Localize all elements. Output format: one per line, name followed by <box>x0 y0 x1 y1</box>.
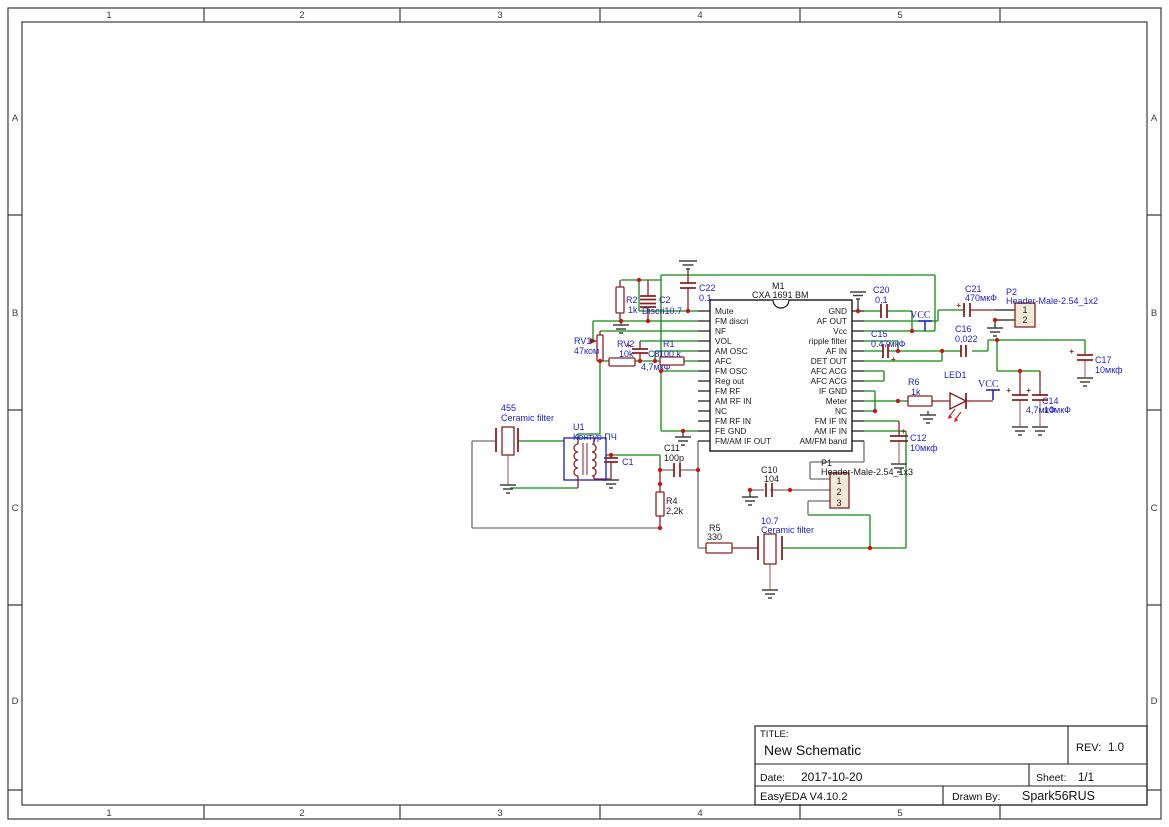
p1-pin-number: 3 <box>836 498 841 508</box>
component-107-ceramic-filter[interactable]: 10.7 Ceramic filter <box>758 516 814 564</box>
ic-pin-label: AFC ACG <box>811 376 847 386</box>
ic-pin-label: AM IF IN <box>814 426 847 436</box>
c2-ref-label: C2 <box>659 295 671 305</box>
ic-pin-label: NF <box>715 326 726 336</box>
schematic-sheet: 1 2 3 4 5 1 2 3 4 5 A B C D A B C D TITL… <box>0 0 1169 827</box>
frame-row-label: C <box>12 503 19 514</box>
vcc-net-flag[interactable]: VCC <box>978 379 1000 400</box>
frame-col-label: 5 <box>897 10 902 21</box>
sheet-label: Sheet: <box>1036 772 1066 784</box>
frame-col-label: 4 <box>697 808 702 819</box>
component-c22[interactable]: C22 0.1 <box>680 283 716 303</box>
ic-pin-label: AF IN <box>826 346 847 356</box>
ic-pin-label: VOL <box>715 336 732 346</box>
component-rv1-potentiometer[interactable]: RV1 47ком <box>574 335 603 361</box>
c13-plus-sign: + <box>1006 386 1011 395</box>
ic-pin-label: ripple filter <box>809 336 848 346</box>
rv1-ref-label: RV1 <box>574 336 591 346</box>
c15-plus-sign: + <box>891 355 896 364</box>
c1-ref-label: C1 <box>622 457 634 467</box>
ic-pin-label: AFC <box>715 356 732 366</box>
p1-pin-number: 1 <box>836 476 841 486</box>
component-c1[interactable]: C1 <box>604 457 634 467</box>
vcc-net-flag[interactable]: VCC <box>910 310 932 331</box>
frame-col-label: 2 <box>299 10 304 21</box>
r4-ref-label: R4 <box>666 496 678 506</box>
sheet-value: 1/1 <box>1078 772 1094 784</box>
r2-ref-label: R2 <box>626 295 638 305</box>
f107-value-label: Ceramic filter <box>761 525 814 535</box>
title-block: TITLE: New Schematic REV: 1.0 Date: 2017… <box>755 726 1147 805</box>
ic-pin-label: AM RF IN <box>715 396 751 406</box>
f455-ref-label: 455 <box>501 403 516 413</box>
component-c11[interactable]: C11 100p <box>664 443 684 477</box>
c12-plus-sign: + <box>901 427 906 436</box>
component-r1[interactable]: R1 100 k <box>659 339 684 365</box>
ic-pin-label: AM/FM band <box>800 436 848 446</box>
ic-pin-label: Meter <box>826 396 847 406</box>
c21-plus-sign: + <box>956 301 961 310</box>
frame-row-label: A <box>12 113 19 124</box>
component-c10[interactable]: C10 104 <box>761 465 779 497</box>
p1-value-label: Header-Male-2.54_1x3 <box>821 467 913 477</box>
c15-value-label: 0.47мкФ <box>871 339 906 349</box>
drawn-by-value: Spark56RUS <box>1022 789 1095 803</box>
c12-value-label: 10мкф <box>910 443 938 453</box>
drawn-by-label: Drawn By: <box>952 791 1000 803</box>
r1-value-label: 100 k <box>659 349 682 359</box>
r6-value-label: 1k <box>911 387 921 397</box>
rev-value: 1.0 <box>1108 742 1124 754</box>
component-c2-discriminator[interactable]: C2 Discri10.7 <box>640 295 682 316</box>
frame-row-label: B <box>1151 308 1157 319</box>
component-r2[interactable]: R2 1k <box>616 287 638 315</box>
ic-pin-label: FE GND <box>715 426 746 436</box>
ic-pin-label: FM RF IN <box>715 416 751 426</box>
u1-secondary-coil-icon <box>592 444 596 476</box>
c8-ref-label: C8 <box>648 349 660 359</box>
component-c20[interactable]: C20 0,1 <box>873 285 890 318</box>
r2-value-label: 1k <box>628 305 638 315</box>
component-c16[interactable]: C16 0,022 <box>955 324 978 357</box>
c16-value-label: 0,022 <box>955 334 978 344</box>
c17-value-label: 10мкф <box>1095 365 1123 375</box>
u1-value-label: Контур ПЧ <box>573 432 617 442</box>
u1-core-icon <box>583 443 587 475</box>
rv1-value-label: 47ком <box>574 346 599 356</box>
ic-pin-label: Mute <box>715 306 734 316</box>
c14-value-label: 10мкФ <box>1044 405 1071 415</box>
frame-col-label: 4 <box>697 10 702 21</box>
ic-part-label: CXA 1691 BM <box>752 290 809 300</box>
r5-value-label: 330 <box>707 532 722 542</box>
component-led1[interactable]: LED1 <box>944 370 967 422</box>
frame-col-label: 3 <box>497 10 502 21</box>
p1-pin-number: 2 <box>836 487 841 497</box>
led-triangle-icon <box>950 393 966 409</box>
ic-pin-label: IF GND <box>819 386 847 396</box>
c10-value-label: 104 <box>764 474 779 484</box>
rev-label: REV: <box>1076 742 1101 754</box>
frame-row-label: A <box>1151 113 1158 124</box>
date-value: 2017-10-20 <box>801 770 863 784</box>
c15-ref-label: C15 <box>871 329 888 339</box>
component-r6[interactable]: R6 1k <box>908 377 932 406</box>
ic-pin-label: AM OSC <box>715 346 748 356</box>
ic-pin-label: FM RF <box>715 386 740 396</box>
component-rv2-potentiometer[interactable]: RV2 10k <box>609 339 635 366</box>
rv2-value-label: 10k <box>619 349 634 359</box>
ic-pin-label: FM OSC <box>715 366 747 376</box>
ic-pin-label: NC <box>715 406 727 416</box>
frame-col-label: 3 <box>497 808 502 819</box>
p2-value-label: Header-Male-2.54_1x2 <box>1006 296 1098 306</box>
ic-pin-label: FM IF IN <box>815 416 847 426</box>
led1-ref-label: LED1 <box>944 370 967 380</box>
c20-ref-label: C20 <box>873 285 890 295</box>
ic-pin-label: NC <box>835 406 847 416</box>
schematic-title: New Schematic <box>764 742 861 758</box>
component-r4[interactable]: R4 2,2k <box>656 492 684 516</box>
ic-pin-label: AF OUT <box>817 316 847 326</box>
c17-ref-label: C17 <box>1095 355 1112 365</box>
c17-plus-sign: + <box>1069 347 1074 356</box>
title-label: TITLE: <box>760 729 789 740</box>
u1-ref-label: U1 <box>573 422 585 432</box>
frame-col-label: 2 <box>299 808 304 819</box>
component-c15[interactable]: + C15 0.47мкФ <box>871 329 906 364</box>
frame-col-label: 5 <box>897 808 902 819</box>
ic-pin-label: Reg out <box>715 376 745 386</box>
c11-value-label: 100p <box>664 453 684 463</box>
sheet-frame: 1 2 3 4 5 1 2 3 4 5 A B C D A B C D <box>8 8 1161 819</box>
c22-value-label: 0.1 <box>699 293 712 303</box>
ic-pin-label: AFC ACG <box>811 366 847 376</box>
component-r5[interactable]: R5 330 <box>706 523 732 553</box>
c22-ref-label: C22 <box>699 283 716 293</box>
c12-ref-label: C12 <box>910 433 927 443</box>
c14-plus-sign: + <box>1026 386 1031 395</box>
c16-ref-label: C16 <box>955 324 972 334</box>
ic-pin-label: DET OUT <box>811 356 847 366</box>
ic-pin-label: FM/AM IF OUT <box>715 436 771 446</box>
f455-value-label: Ceramic filter <box>501 413 554 423</box>
vcc-label: VCC <box>910 310 931 321</box>
frame-row-label: B <box>12 308 18 319</box>
c2-value-label: Discri10.7 <box>642 306 682 316</box>
c11-ref-label: C11 <box>664 443 680 453</box>
frame-row-label: D <box>1151 696 1158 707</box>
tool-version: EasyEDA V4.10.2 <box>760 791 847 803</box>
component-p2-header[interactable]: 1 2 P2 Header-Male-2.54_1x2 <box>1006 287 1098 327</box>
c21-value-label: 470мкФ <box>965 293 997 303</box>
component-m1-ic[interactable]: M1 CXA 1691 BM Mute FM discri NF VOL AM … <box>698 281 864 451</box>
c8-plus-sign: + <box>626 341 631 350</box>
frame-col-label: 1 <box>106 10 111 21</box>
frame-col-label: 1 <box>106 808 111 819</box>
r1-ref-label: R1 <box>663 339 675 349</box>
frame-row-label: C <box>1151 503 1158 514</box>
component-p1-header[interactable]: 1 2 3 P1 Header-Male-2.54_1x3 <box>821 458 913 508</box>
r4-value-label: 2,2k <box>666 506 684 516</box>
p2-pin-number: 1 <box>1022 305 1027 315</box>
component-c21[interactable]: + C21 470мкФ <box>956 284 997 317</box>
component-u1-if-transformer[interactable]: U1 Контур ПЧ <box>564 422 617 480</box>
date-label: Date: <box>760 772 785 784</box>
ic-pin-label: GND <box>829 306 847 316</box>
ic-pin-label: FM discri <box>715 316 749 326</box>
frame-row-label: D <box>12 696 19 707</box>
component-c17[interactable]: + C17 10мкф <box>1069 347 1123 375</box>
ic-pin-label: Vcc <box>833 326 847 336</box>
vcc-label: VCC <box>978 379 999 390</box>
p2-pin-number: 2 <box>1022 315 1027 325</box>
r6-ref-label: R6 <box>908 377 920 387</box>
c20-value-label: 0,1 <box>875 295 888 305</box>
u1-primary-coil-icon <box>574 444 578 476</box>
component-455-ceramic-filter[interactable]: 455 Ceramic filter <box>496 403 554 455</box>
